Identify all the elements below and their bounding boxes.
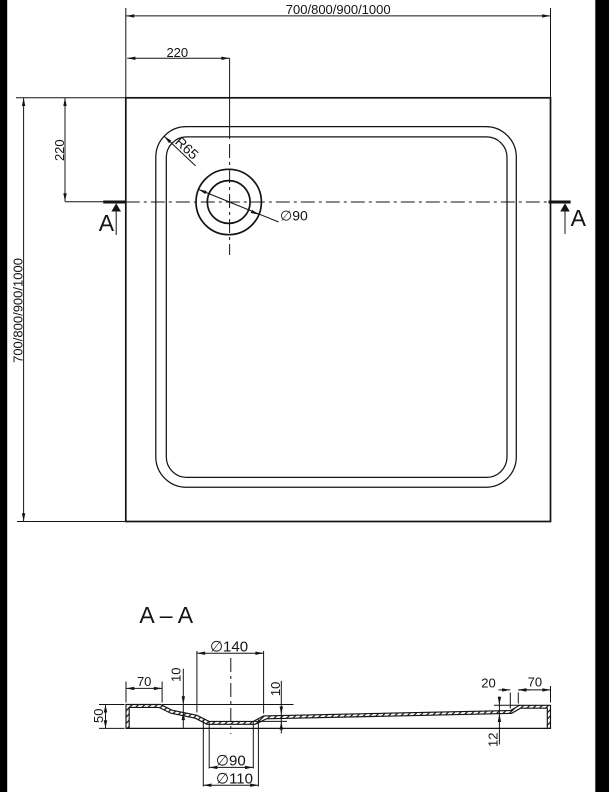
svg-text:700/800/900/1000: 700/800/900/1000 — [10, 258, 25, 363]
svg-text:∅140: ∅140 — [210, 639, 248, 656]
svg-text:12: 12 — [486, 733, 501, 747]
svg-text:∅90: ∅90 — [280, 208, 308, 224]
svg-text:50: 50 — [91, 709, 106, 723]
svg-text:∅110: ∅110 — [216, 770, 253, 787]
svg-text:10: 10 — [268, 682, 283, 696]
svg-text:20: 20 — [481, 676, 495, 691]
svg-text:A: A — [571, 205, 587, 231]
svg-text:∅90: ∅90 — [216, 753, 246, 770]
svg-text:70: 70 — [137, 674, 151, 689]
svg-text:70: 70 — [528, 675, 542, 690]
svg-text:220: 220 — [52, 139, 67, 161]
svg-text:10: 10 — [168, 668, 183, 682]
svg-text:A: A — [99, 210, 115, 236]
svg-text:220: 220 — [166, 45, 188, 60]
svg-text:700/800/900/1000: 700/800/900/1000 — [286, 2, 391, 17]
svg-text:A – A: A – A — [139, 602, 193, 628]
